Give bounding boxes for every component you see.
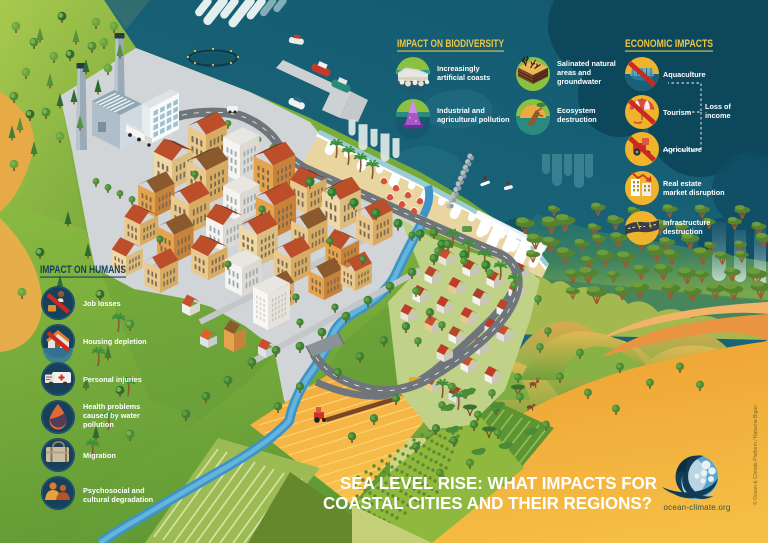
svg-text:Ecosystem: Ecosystem — [557, 106, 596, 115]
svg-text:IMPACT ON BIODIVERSITY: IMPACT ON BIODIVERSITY — [397, 38, 504, 50]
svg-text:COASTAL CITIES AND THEIR REGIO: COASTAL CITIES AND THEIR REGIONS? — [323, 493, 652, 513]
svg-text:income: income — [705, 111, 731, 120]
svg-text:groundwater: groundwater — [557, 77, 601, 86]
svg-text:Tourism: Tourism — [663, 108, 692, 117]
svg-text:areas and: areas and — [557, 68, 591, 77]
svg-text:pollution: pollution — [83, 420, 114, 429]
svg-text:IMPACT ON HUMANS: IMPACT ON HUMANS — [40, 264, 126, 276]
svg-text:destruction: destruction — [663, 227, 703, 236]
svg-text:Infrastructure: Infrastructure — [663, 218, 710, 227]
svg-text:Job losses: Job losses — [83, 299, 121, 308]
svg-text:Health problems: Health problems — [83, 402, 140, 411]
svg-text:Salinated natural: Salinated natural — [557, 59, 616, 68]
svg-text:Migration: Migration — [83, 451, 116, 460]
svg-text:© Ocean & Climate Platform / N: © Ocean & Climate Platform / Natacha Big… — [752, 405, 759, 505]
svg-text:Real estate: Real estate — [663, 179, 702, 188]
svg-text:Psychosocial and: Psychosocial and — [83, 486, 145, 495]
svg-text:SEA LEVEL RISE: WHAT IMPACTS F: SEA LEVEL RISE: WHAT IMPACTS FOR — [340, 473, 657, 493]
svg-text:market disruption: market disruption — [663, 188, 725, 197]
svg-text:cultural degradation: cultural degradation — [83, 495, 153, 504]
svg-text:agricultural pollution: agricultural pollution — [437, 115, 510, 124]
svg-text:artificial coasts: artificial coasts — [437, 73, 490, 82]
svg-text:ECONOMIC IMPACTS: ECONOMIC IMPACTS — [625, 38, 713, 50]
svg-text:Aquaculture: Aquaculture — [663, 70, 706, 79]
svg-text:Housing depletion: Housing depletion — [83, 337, 147, 346]
svg-text:Agriculture: Agriculture — [663, 145, 702, 154]
svg-text:Loss of: Loss of — [705, 102, 732, 111]
svg-text:Personal injuries: Personal injuries — [83, 375, 142, 384]
svg-text:caused by water: caused by water — [83, 411, 140, 420]
svg-text:Increasingly: Increasingly — [437, 64, 481, 73]
svg-text:destruction: destruction — [557, 115, 597, 124]
svg-text:Industrial and: Industrial and — [437, 106, 485, 115]
svg-text:ocean-climate.org: ocean-climate.org — [664, 503, 731, 512]
